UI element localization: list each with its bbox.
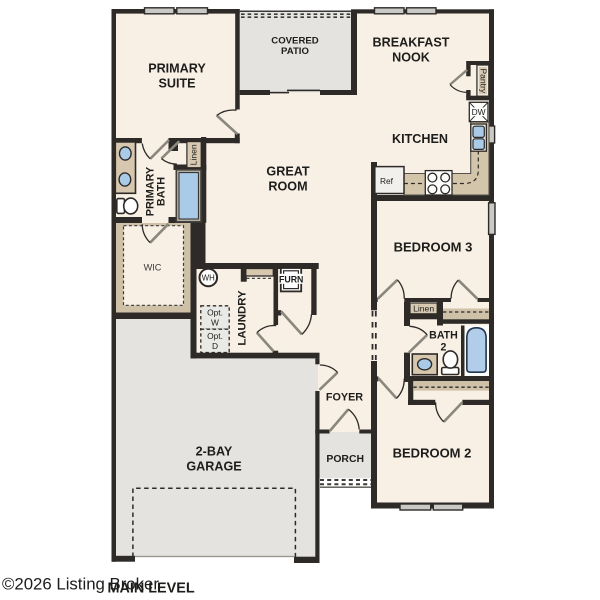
- svg-text:Ref: Ref: [380, 176, 394, 186]
- svg-text:PORCH: PORCH: [326, 454, 364, 465]
- svg-text:MAIN LEVEL: MAIN LEVEL: [108, 581, 195, 597]
- svg-text:KITCHEN: KITCHEN: [392, 132, 448, 146]
- svg-text:SUITE: SUITE: [158, 77, 195, 91]
- svg-text:PRIMARY: PRIMARY: [148, 62, 206, 76]
- svg-text:Opt.: Opt.: [207, 308, 223, 318]
- svg-text:BEDROOM 2: BEDROOM 2: [393, 445, 472, 460]
- svg-text:WIC: WIC: [144, 263, 162, 273]
- svg-text:BREAKFAST: BREAKFAST: [373, 36, 450, 50]
- svg-text:LAUNDRY: LAUNDRY: [237, 290, 249, 346]
- svg-text:NOOK: NOOK: [392, 51, 430, 65]
- svg-text:BEDROOM 3: BEDROOM 3: [394, 240, 473, 255]
- svg-text:Opt.: Opt.: [207, 331, 223, 341]
- svg-text:COVERED: COVERED: [271, 36, 319, 47]
- svg-text:ROOM: ROOM: [268, 180, 307, 194]
- svg-text:2-BAY: 2-BAY: [196, 445, 233, 459]
- svg-text:Linen: Linen: [189, 144, 199, 165]
- svg-text:D: D: [212, 341, 218, 351]
- svg-text:Pantry: Pantry: [479, 68, 489, 94]
- svg-text:GREAT: GREAT: [266, 165, 309, 179]
- svg-text:Linen: Linen: [413, 303, 434, 313]
- svg-text:WH: WH: [202, 273, 215, 282]
- svg-text:PATIO: PATIO: [281, 46, 309, 57]
- svg-text:GARAGE: GARAGE: [186, 460, 241, 474]
- svg-text:FOYER: FOYER: [326, 391, 363, 403]
- svg-text:2: 2: [441, 342, 447, 354]
- svg-text:DW: DW: [472, 107, 486, 117]
- svg-text:BATH: BATH: [429, 330, 458, 342]
- svg-text:BATH: BATH: [155, 177, 167, 206]
- svg-text:W: W: [211, 317, 219, 327]
- svg-text:FURN: FURN: [279, 275, 303, 285]
